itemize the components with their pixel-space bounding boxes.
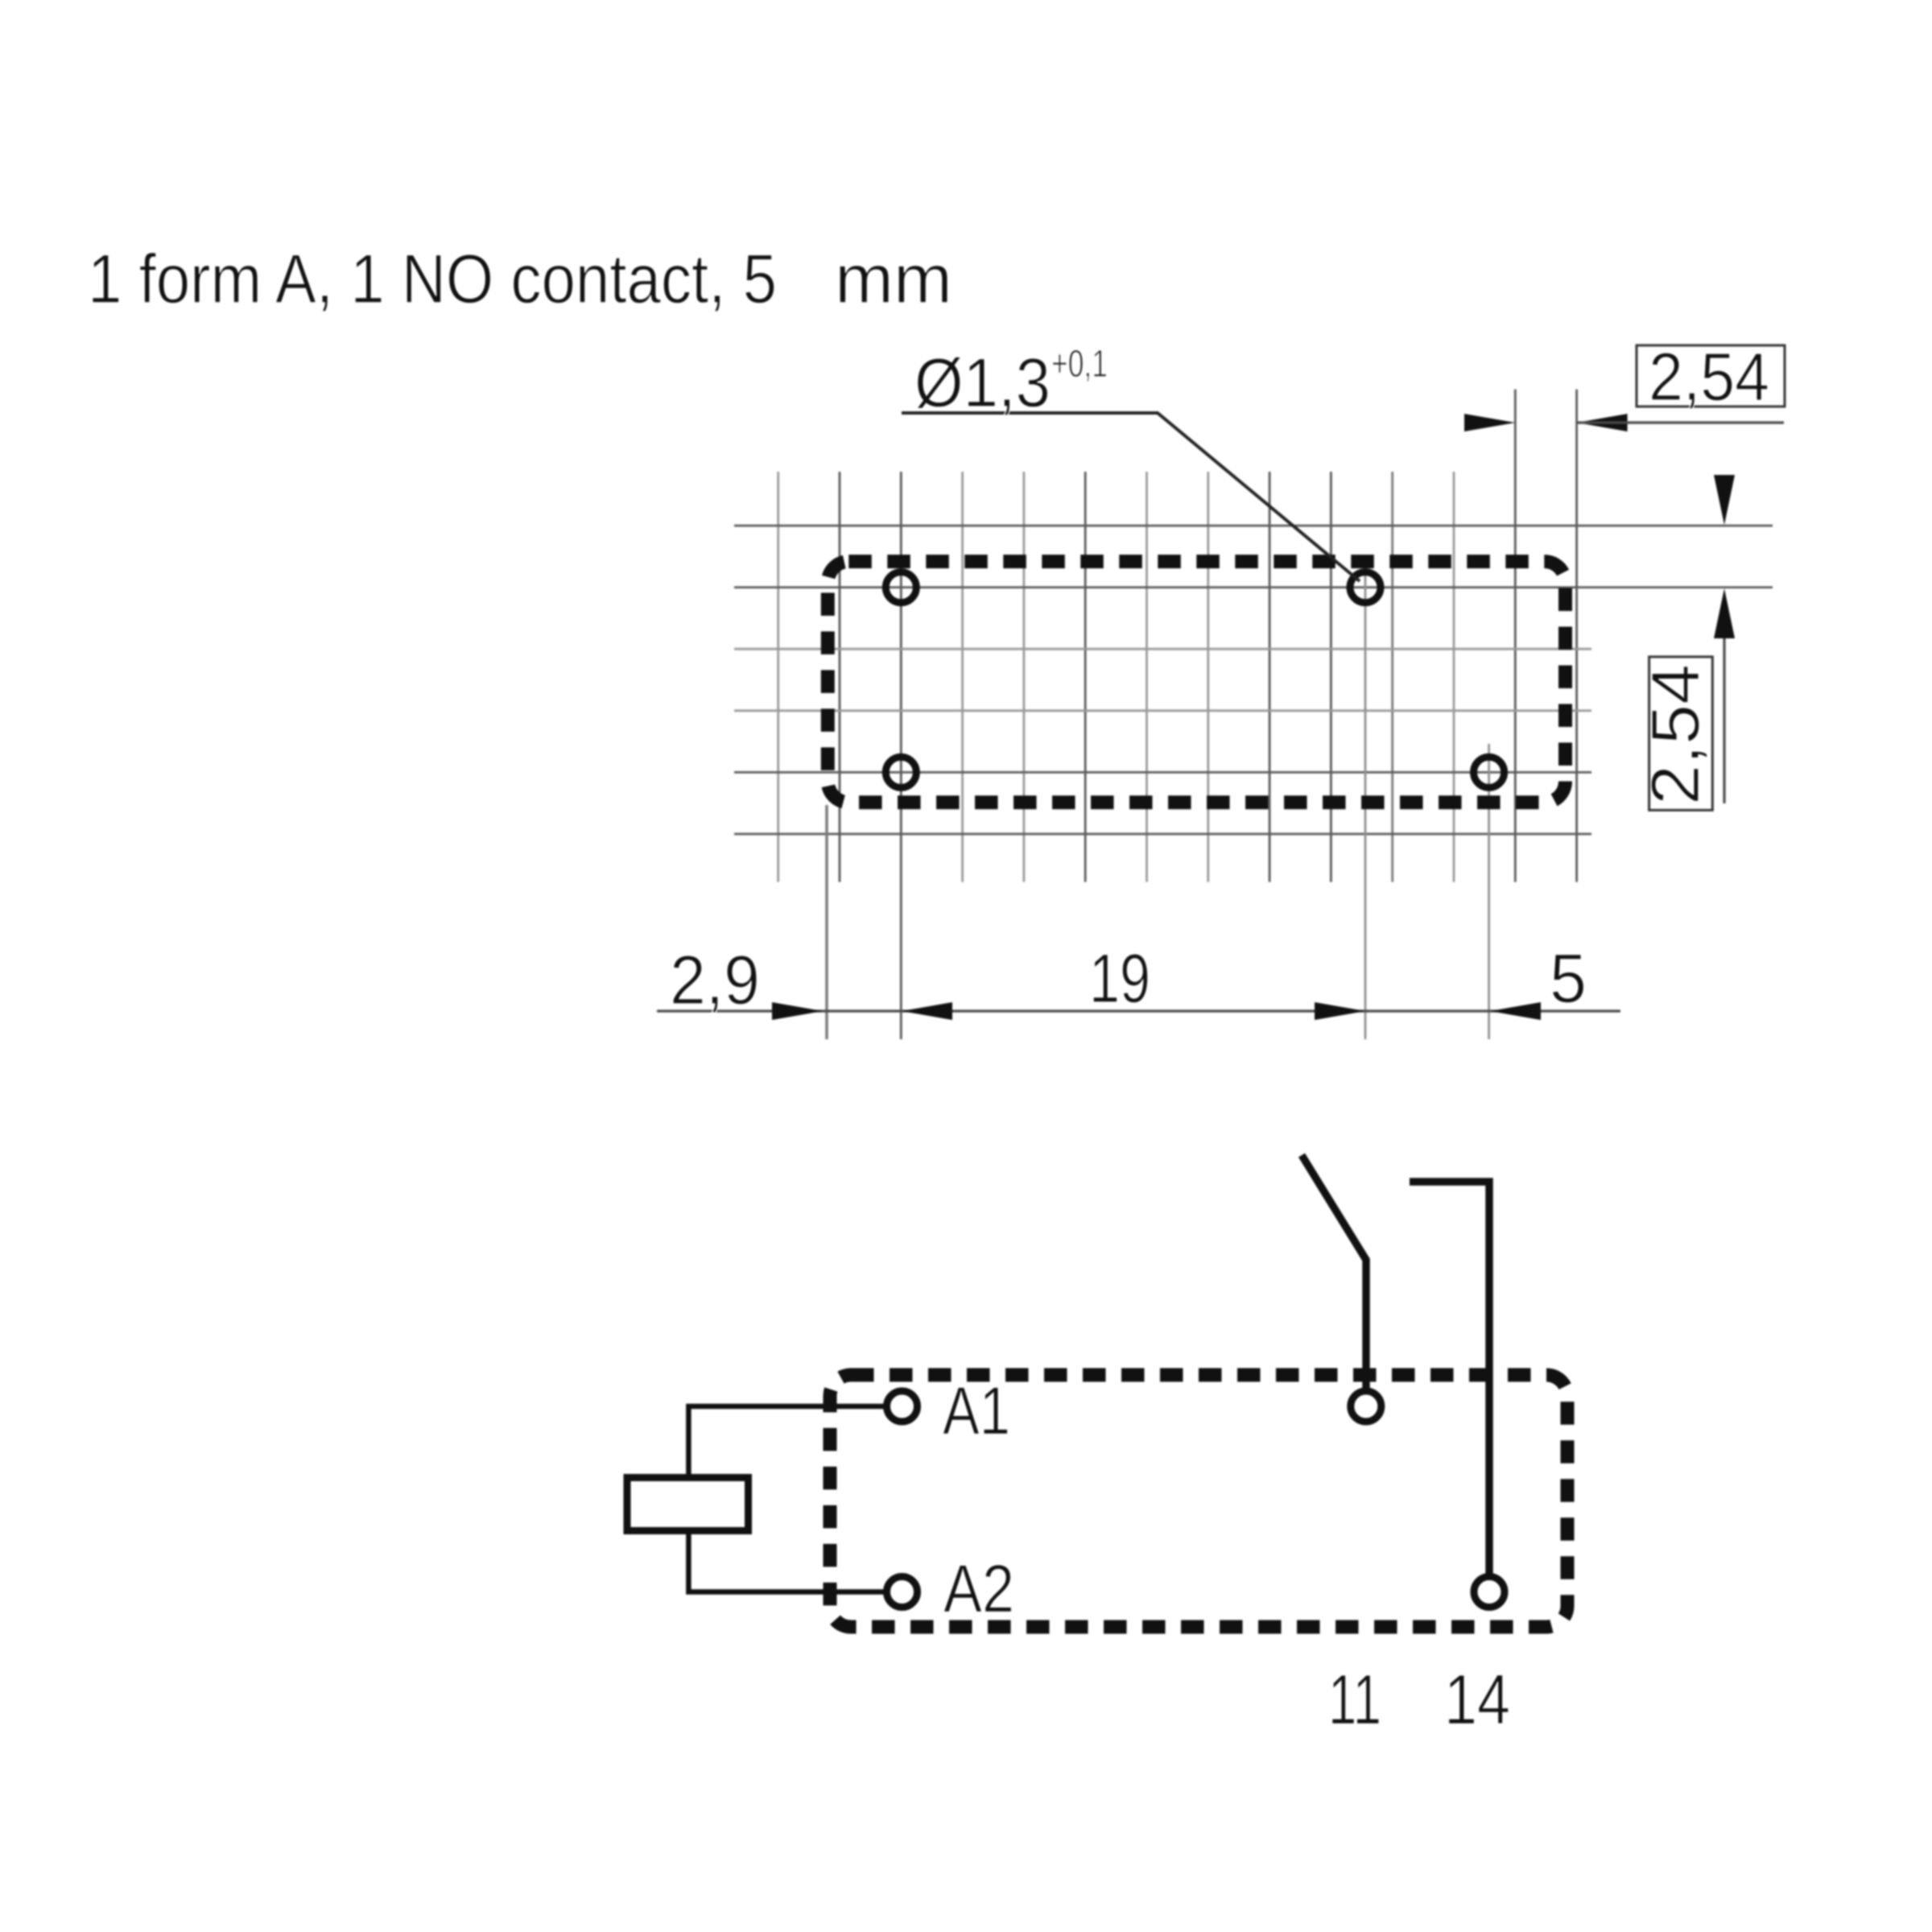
svg-text:5: 5 — [1550, 940, 1587, 1018]
svg-text:+0,1: +0,1 — [1051, 343, 1108, 386]
svg-text:11: 11 — [1328, 1660, 1381, 1740]
svg-text:A2: A2 — [943, 1551, 1014, 1627]
svg-text:A1: A1 — [943, 1373, 1010, 1449]
svg-text:2,54: 2,54 — [1637, 664, 1713, 805]
svg-text:19: 19 — [1089, 940, 1150, 1018]
svg-text:Ø1,3: Ø1,3 — [914, 345, 1051, 422]
svg-text:2,9: 2,9 — [670, 942, 760, 1019]
svg-text:1 form A, 1 NO contact, 5: 1 form A, 1 NO contact, 5 — [88, 241, 777, 318]
svg-text:2,54: 2,54 — [1649, 339, 1769, 415]
svg-text:mm: mm — [835, 241, 952, 318]
svg-text:14: 14 — [1444, 1660, 1510, 1740]
